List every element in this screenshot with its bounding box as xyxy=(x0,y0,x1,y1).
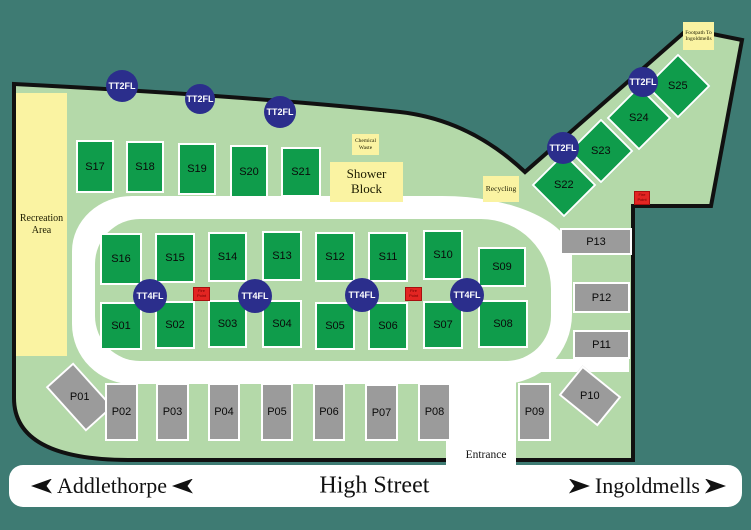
pitch-s20-label: S20 xyxy=(239,166,259,178)
chemical-waste-label: Chemical Waste xyxy=(352,138,379,151)
pitch-s05-label: S05 xyxy=(325,320,345,332)
pitch-s24-label: S24 xyxy=(629,112,649,124)
pitch-s17-label: S17 xyxy=(85,161,105,173)
water-tap-tt4fl: TT4FL xyxy=(450,278,484,312)
pitch-s16: S16 xyxy=(100,233,142,285)
pitch-p02-label: P02 xyxy=(112,406,132,418)
pitch-s14-label: S14 xyxy=(218,251,238,263)
recycling-label: Recycling xyxy=(486,185,516,194)
pitch-s07-label: S07 xyxy=(433,319,453,331)
side-road xyxy=(505,359,629,372)
fire-point-label: Fire Point xyxy=(194,289,209,299)
pitch-p12-label: P12 xyxy=(592,292,612,304)
pitch-s21: S21 xyxy=(281,147,321,197)
fire-point: Fire Point xyxy=(193,287,210,301)
pitch-s11-label: S11 xyxy=(379,251,398,263)
pitch-p05-label: P05 xyxy=(267,406,287,418)
pitch-s18: S18 xyxy=(126,141,164,193)
pitch-s19: S19 xyxy=(178,143,216,195)
right-arrow-icon xyxy=(569,479,590,494)
pitch-p10-label: P10 xyxy=(580,390,600,402)
destination-right-label: Ingoldmells xyxy=(595,473,700,499)
water-tap-tt2fl-label: TT2FL xyxy=(630,77,657,87)
water-tap-tt2fl: TT2FL xyxy=(628,67,658,97)
pitch-p12: P12 xyxy=(573,282,630,313)
fire-point-label: Fire Point xyxy=(406,289,421,299)
pitch-p06-label: P06 xyxy=(319,406,339,418)
pitch-s15: S15 xyxy=(155,233,195,283)
pitch-p03-label: P03 xyxy=(163,406,183,418)
chemical-waste: Chemical Waste xyxy=(352,134,379,155)
pitch-s12-label: S12 xyxy=(325,251,345,263)
water-tap-tt2fl-label: TT2FL xyxy=(109,81,136,91)
destination-ingoldmells: Ingoldmells xyxy=(569,473,726,499)
shower-block: Shower Block xyxy=(330,162,403,202)
pitch-p05: P05 xyxy=(261,383,293,441)
recreation-area: Recreation Area xyxy=(16,93,67,356)
pitch-s09: S09 xyxy=(478,247,526,287)
pitch-s06: S06 xyxy=(368,302,408,350)
fire-point-label: Fire Point xyxy=(635,193,649,203)
pitch-s03-label: S03 xyxy=(218,318,238,330)
destination-addlethorpe: Addlethorpe xyxy=(31,473,193,499)
pitch-p07-label: P07 xyxy=(372,407,392,419)
pitch-s18-label: S18 xyxy=(135,161,155,173)
water-tap-tt4fl: TT4FL xyxy=(238,279,272,313)
water-tap-tt2fl: TT2FL xyxy=(547,132,579,164)
water-tap-tt2fl: TT2FL xyxy=(185,84,215,114)
street-name: High Street xyxy=(319,473,429,500)
pitch-s15-label: S15 xyxy=(165,252,185,264)
water-tap-tt4fl-label: TT4FL xyxy=(349,290,376,300)
pitch-s22-label: S22 xyxy=(554,179,574,191)
caravan-park-map: S01S02S03S04S05S06S07S08S09S10S11S12S13S… xyxy=(0,0,751,530)
pitch-s05: S05 xyxy=(315,302,355,350)
left-arrow-icon xyxy=(172,479,193,494)
pitch-p07: P07 xyxy=(365,384,398,441)
pitch-s14: S14 xyxy=(208,232,247,282)
pitch-p08: P08 xyxy=(418,383,451,441)
water-tap-tt2fl: TT2FL xyxy=(264,96,296,128)
pitch-s12: S12 xyxy=(315,232,355,282)
pitch-s01-label: S01 xyxy=(111,320,131,332)
pitch-p09: P09 xyxy=(518,383,551,441)
pitch-p04: P04 xyxy=(208,383,240,441)
shower-block-label: Shower Block xyxy=(330,167,403,197)
pitch-s11: S11 xyxy=(368,232,408,282)
pitch-s08: S08 xyxy=(478,300,528,348)
pitch-s04-label: S04 xyxy=(272,318,292,330)
pitch-s03: S03 xyxy=(208,300,247,348)
street-bar: Addlethorpe High Street Ingoldmells xyxy=(9,465,742,507)
pitch-s23-label: S23 xyxy=(591,145,611,157)
pitch-s01: S01 xyxy=(100,302,142,350)
pitch-p09-label: P09 xyxy=(525,406,545,418)
pitch-p03: P03 xyxy=(156,383,189,441)
fire-point: Fire Point xyxy=(405,287,422,301)
pitch-s16-label: S16 xyxy=(111,253,131,265)
water-tap-tt2fl-label: TT2FL xyxy=(187,94,214,104)
pitch-s25-label: S25 xyxy=(668,80,688,92)
pitch-s09-label: S09 xyxy=(492,261,512,273)
pitch-s13: S13 xyxy=(262,231,302,281)
water-tap-tt4fl-label: TT4FL xyxy=(454,290,481,300)
water-tap-tt2fl-label: TT2FL xyxy=(267,107,294,117)
fire-point: Fire Point xyxy=(634,191,650,205)
pitch-s21-label: S21 xyxy=(291,166,311,178)
water-tap-tt4fl-label: TT4FL xyxy=(137,291,164,301)
pitch-s10: S10 xyxy=(423,230,463,280)
pitch-p11: P11 xyxy=(573,330,630,359)
pitch-p02: P02 xyxy=(105,383,138,441)
pitch-p13: P13 xyxy=(560,228,632,255)
pitch-s19-label: S19 xyxy=(187,163,207,175)
recycling: Recycling xyxy=(483,176,519,202)
water-tap-tt2fl: TT2FL xyxy=(106,70,138,102)
pitch-s13-label: S13 xyxy=(272,250,292,262)
pitch-s04: S04 xyxy=(262,300,302,348)
pitch-s06-label: S06 xyxy=(378,320,398,332)
footpath-to-ingoldmells: Footpath To Ingoldmells xyxy=(683,22,714,50)
destination-left-label: Addlethorpe xyxy=(57,473,167,499)
pitch-s20: S20 xyxy=(230,145,268,198)
left-arrow-icon xyxy=(31,479,52,494)
water-tap-tt4fl: TT4FL xyxy=(345,278,379,312)
pitch-p08-label: P08 xyxy=(425,406,445,418)
right-arrow-icon xyxy=(705,479,726,494)
entrance-label: Entrance xyxy=(452,449,520,461)
pitch-s10-label: S10 xyxy=(433,249,453,261)
water-tap-tt2fl-label: TT2FL xyxy=(550,143,577,153)
water-tap-tt4fl: TT4FL xyxy=(133,279,167,313)
footpath-to-ingoldmells-label: Footpath To Ingoldmells xyxy=(683,30,714,43)
recreation-area-label: Recreation Area xyxy=(16,213,67,236)
pitch-s08-label: S08 xyxy=(493,318,513,330)
pitch-p04-label: P04 xyxy=(214,406,234,418)
pitch-s17: S17 xyxy=(76,140,114,193)
pitch-s02-label: S02 xyxy=(165,319,185,331)
pitch-p13-label: P13 xyxy=(586,236,606,248)
pitch-p11-label: P11 xyxy=(592,339,611,351)
pitch-p01-label: P01 xyxy=(70,391,90,403)
water-tap-tt4fl-label: TT4FL xyxy=(242,291,269,301)
pitch-p06: P06 xyxy=(313,383,345,441)
